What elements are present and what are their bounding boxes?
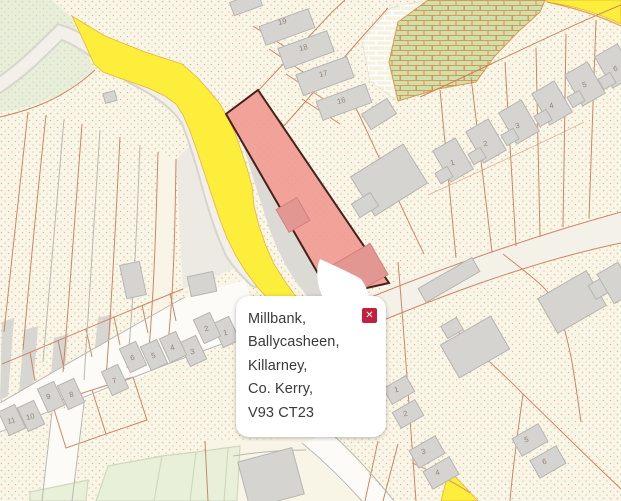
popup-tail xyxy=(303,253,378,303)
address-line: Killarney, xyxy=(248,355,378,378)
popup-address: Millbank, Ballycasheen, Killarney, Co. K… xyxy=(248,308,378,425)
address-line: V93 CT23 xyxy=(248,402,378,425)
map-viewport[interactable]: 191817161234561234561234567891011 ✕ Mill… xyxy=(0,0,621,501)
map-popup: ✕ Millbank, Ballycasheen, Killarney, Co.… xyxy=(236,296,386,437)
address-line: Ballycasheen, xyxy=(248,331,378,354)
address-line: Millbank, xyxy=(248,308,378,331)
popup-close-button[interactable]: ✕ xyxy=(362,308,377,323)
address-line: Co. Kerry, xyxy=(248,378,378,401)
